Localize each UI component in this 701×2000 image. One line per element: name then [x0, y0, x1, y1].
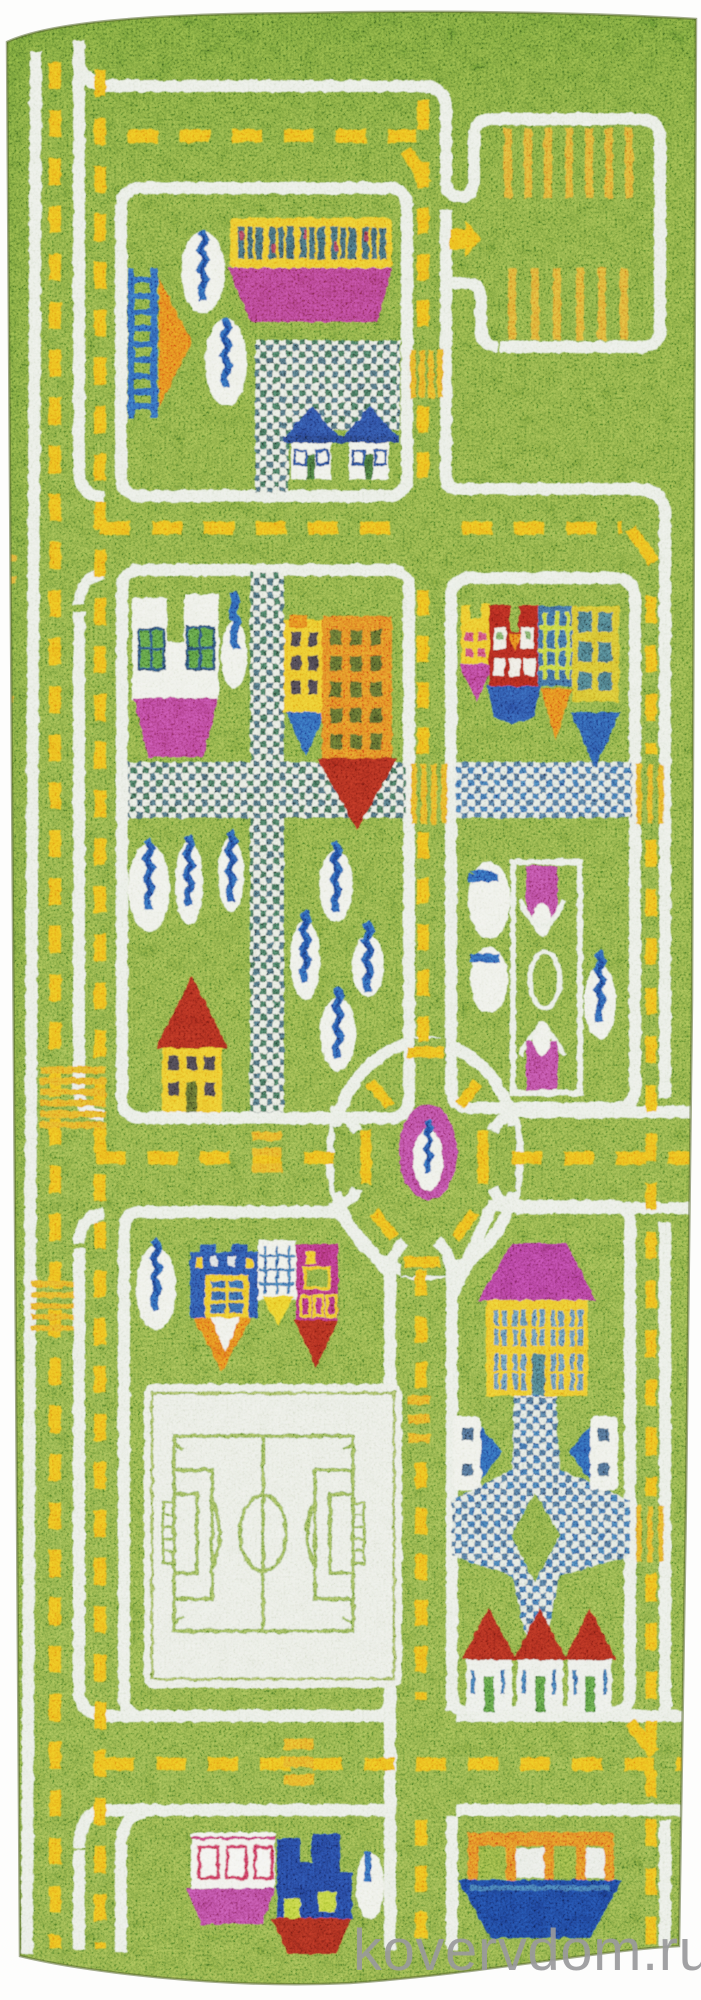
svg-text:kovervdom.ru: kovervdom.ru — [353, 1918, 701, 1983]
